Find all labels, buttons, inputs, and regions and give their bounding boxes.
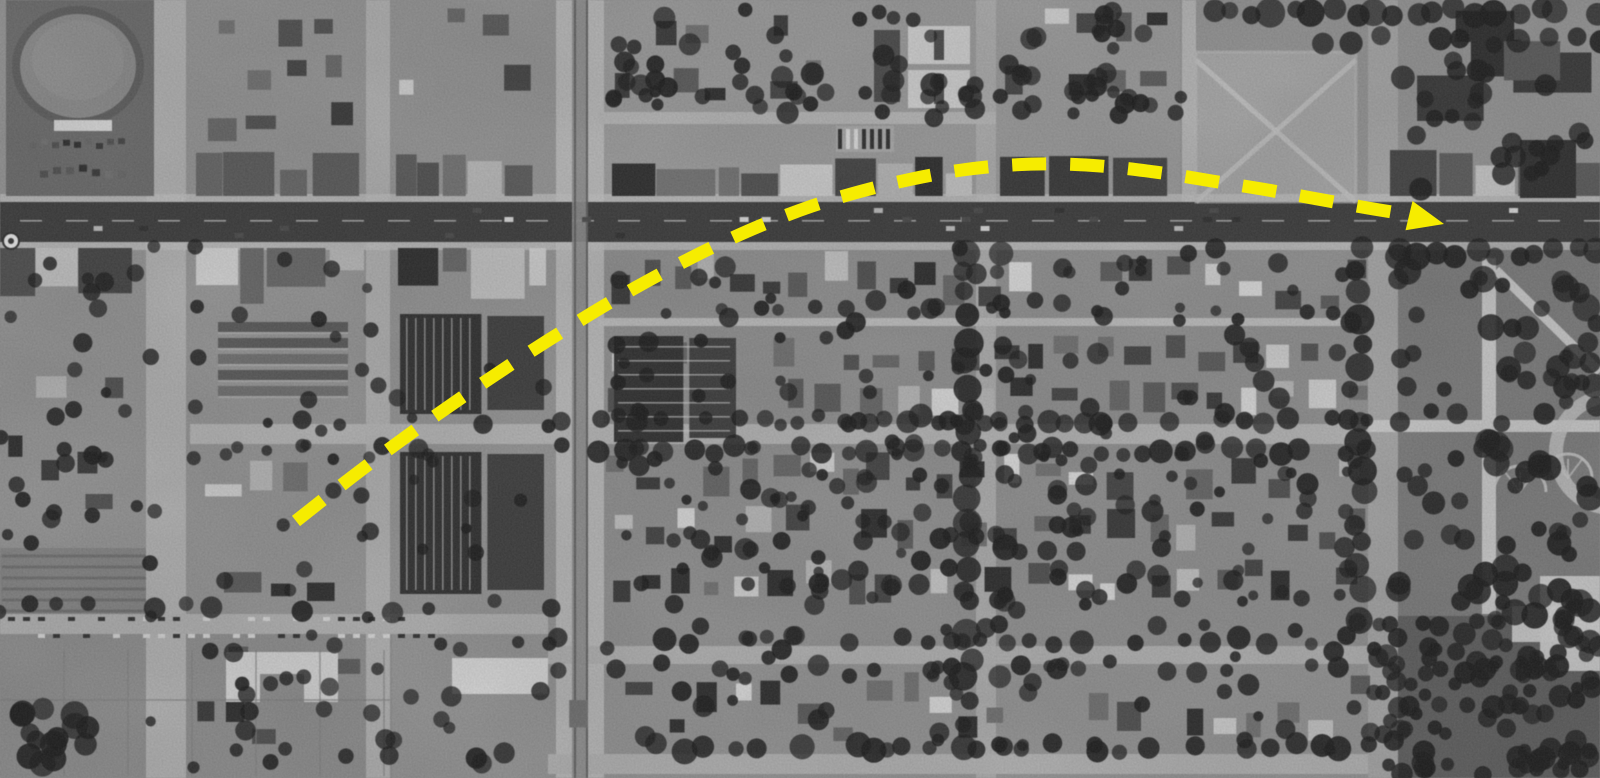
screenshot-root (0, 0, 1600, 778)
aerial-photograph (0, 0, 1600, 778)
film-grain-dark (0, 0, 1600, 778)
